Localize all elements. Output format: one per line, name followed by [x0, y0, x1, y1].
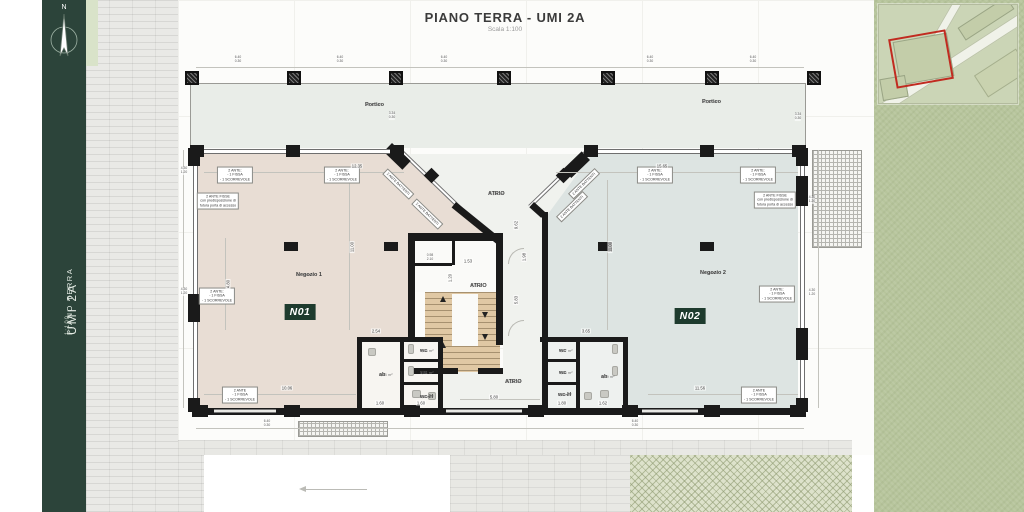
dimension-label: 10.06 — [281, 386, 293, 391]
dimension-label: 12.35 — [351, 164, 363, 169]
room-area: 3,23 m² — [420, 394, 434, 399]
unit-badge: N02 — [675, 308, 706, 324]
room-area: 4,13 m² — [379, 372, 393, 377]
dimension-label: 11.56 — [694, 386, 706, 391]
annotation-box: 2 ANTE: - 1 FISSA - 1 SCORREVOLE — [324, 167, 360, 184]
annotation-box: 2 ANTE: - 1 FISSA - 1 SCORREVOLE — [217, 167, 253, 184]
room-area: 190,86 m² — [296, 272, 314, 277]
dimension-label: 4.80 — [226, 279, 231, 289]
dimension-label: 3.65 — [581, 329, 591, 334]
dimension-pair-label: 6.40 0.30 — [264, 420, 270, 428]
dimension-pair-label: 0.98 2.10 — [427, 254, 433, 262]
room-area: 44,20 m² — [365, 102, 381, 107]
dimension-label: 9.62 — [514, 220, 519, 230]
dimension-pair-label: 3.34 0.30 — [795, 113, 801, 121]
annotation-box: 2 ANTE: - 1 FISSA - 1 SCORREVOLE — [740, 167, 776, 184]
annotation-box: 2 ANTE - 1 FISSA - 1 SCORREVOLE — [741, 387, 777, 404]
room-area: 4,89 m² — [601, 374, 615, 379]
room-area: 14,28 m² — [505, 379, 521, 384]
dimension-label: 1.80 — [557, 401, 567, 406]
dimension-pair-label: 6.40 0.30 — [750, 56, 756, 64]
dimension-label: 15.65 — [656, 164, 668, 169]
unit-badge: N01 — [285, 304, 316, 320]
dimension-pair-label: 4.30 1.20 — [809, 196, 815, 204]
dimension-label: 2.54 — [371, 329, 381, 334]
room-area: 1,37 m² — [559, 348, 573, 353]
dimension-pair-label: 4.30 1.20 — [181, 167, 187, 175]
label-layer: Portico44,20 m²Portico50,47 m²Negozio 11… — [0, 0, 1024, 512]
annotation-box: 2 ANTE FISSE con predisposizione di futu… — [754, 192, 796, 209]
dimension-label: 11.00 — [608, 241, 613, 253]
room-area: 1,26 m² — [559, 370, 573, 375]
dimension-label: 1.20 — [448, 273, 453, 283]
floor-plan-page: N UMI 2A PIANO TERRA 1:100 PIANO TERRA -… — [0, 0, 1024, 512]
dimension-label: 1.60 — [375, 401, 385, 406]
annotation-box: 2 ANTE - 1 FISSA - 1 SCORREVOLE — [222, 387, 258, 404]
annotation-box: 2 ANTE: - 1 FISSA - 1 SCORREVOLE — [199, 288, 235, 305]
annotation-box: 2 ANTE FISSE con predisposizione di futu… — [197, 193, 239, 210]
annotation-box: 2 ANTE: - 1 FISSA - 1 SCORREVOLE — [637, 167, 673, 184]
room-area: 7,37 m² — [470, 283, 484, 288]
dimension-pair-label: 6.40 0.30 — [337, 56, 343, 64]
dimension-pair-label: 6.40 0.30 — [235, 56, 241, 64]
dimension-pair-label: 4.30 1.20 — [181, 288, 187, 296]
room-area: 1,74 m² — [420, 348, 434, 353]
annotation-box: 2 ANTE BATTENTI — [382, 168, 414, 199]
dimension-pair-label: 6.40 0.30 — [632, 420, 638, 428]
annotation-box: 2 ANTE: - 1 FISSA - 1 SCORREVOLE — [759, 286, 795, 303]
dimension-label: 1.60 — [416, 401, 426, 406]
dimension-label: 1.53 — [463, 259, 473, 264]
dimension-label: 5.80 — [489, 395, 499, 400]
dimension-label: 5.83 — [514, 295, 519, 305]
dimension-label: 1.98 — [522, 252, 527, 262]
room-area: 3,34 m² — [558, 392, 572, 397]
room-area: 1,31 m² — [420, 370, 434, 375]
room-area: 217,78 m² — [700, 270, 718, 275]
dimension-pair-label: 6.40 0.30 — [647, 56, 653, 64]
dimension-pair-label: 3.34 0.30 — [389, 112, 395, 120]
dimension-pair-label: 6.40 0.30 — [441, 56, 447, 64]
annotation-box: 2 ANTE BATTENTI — [411, 198, 443, 229]
dimension-label: 1.62 — [598, 401, 608, 406]
dimension-label: 11.00 — [350, 241, 355, 253]
room-area: 71,31 m² — [488, 191, 504, 196]
room-area: 50,47 m² — [702, 99, 718, 104]
dimension-pair-label: 4.30 1.20 — [809, 289, 815, 297]
